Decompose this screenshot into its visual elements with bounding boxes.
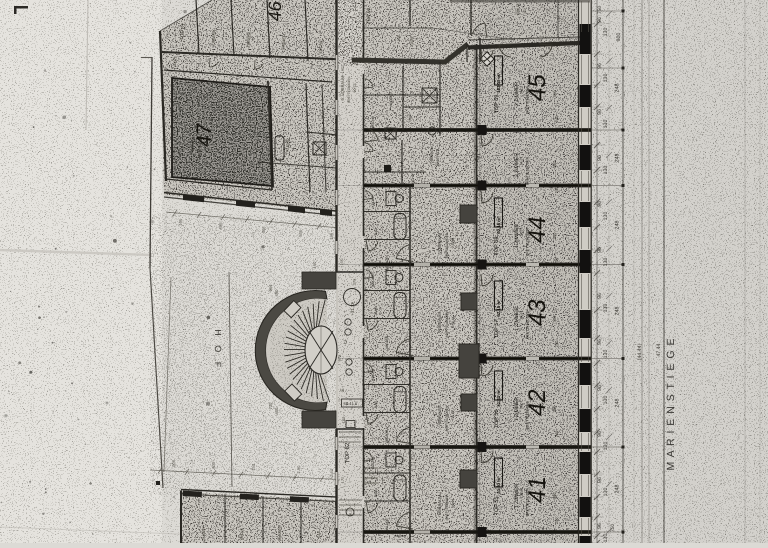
- svg-text:172: 172: [340, 476, 345, 483]
- svg-text:450: 450: [552, 315, 557, 322]
- svg-text:BAD: BAD: [408, 113, 412, 121]
- svg-text:34,07: 34,07: [520, 86, 524, 95]
- svg-text:KAB.: KAB.: [317, 530, 321, 538]
- svg-text:TOP 62: TOP 62: [344, 442, 351, 463]
- svg-text:ZIMMER: ZIMMER: [278, 527, 282, 542]
- svg-text:240: 240: [554, 517, 559, 524]
- svg-text:10,73: 10,73: [353, 84, 357, 93]
- svg-text:+2,64: +2,64: [329, 468, 334, 479]
- svg-text:BRETTELBODEN: BRETTELBODEN: [445, 311, 449, 337]
- svg-text:51,43 m²: 51,43 m²: [496, 389, 501, 407]
- svg-text:130: 130: [603, 442, 609, 451]
- svg-text:130: 130: [603, 212, 609, 221]
- svg-text:KÜCHE: KÜCHE: [240, 527, 244, 540]
- svg-text:130: 130: [603, 350, 609, 359]
- svg-text:96: 96: [597, 201, 603, 207]
- svg-text:47: 47: [193, 122, 216, 149]
- svg-text:130: 130: [603, 534, 609, 543]
- svg-text:BRETTELBODEN: BRETTELBODEN: [445, 405, 449, 431]
- svg-text:BRETTELBODEN: BRETTELBODEN: [526, 156, 530, 185]
- svg-text:VORRAUM: VORRAUM: [437, 495, 442, 515]
- svg-text:248: 248: [615, 485, 621, 494]
- svg-text:96: 96: [597, 477, 603, 483]
- svg-text:VORRAUM: VORRAUM: [430, 146, 434, 164]
- svg-text:96: 96: [597, 339, 603, 345]
- svg-text:KÜCHE: KÜCHE: [411, 173, 415, 186]
- svg-text:TOP 55: TOP 55: [494, 497, 500, 516]
- svg-text:4. VORRAUM: 4. VORRAUM: [340, 76, 345, 101]
- svg-text:555: 555: [397, 35, 401, 41]
- svg-text:240: 240: [554, 430, 559, 437]
- svg-text:190: 190: [329, 232, 335, 240]
- svg-text:450: 450: [552, 232, 557, 239]
- svg-text:130: 130: [603, 304, 609, 313]
- svg-text:153,05 m²: 153,05 m²: [496, 73, 501, 93]
- svg-text:190: 190: [340, 66, 345, 73]
- svg-text:920: 920: [616, 33, 622, 42]
- svg-text:248: 248: [615, 154, 621, 163]
- svg-text:BRETTELBODEN: BRETTELBODEN: [445, 232, 449, 258]
- svg-text:+31,73: +31,73: [350, 302, 355, 316]
- svg-text:468: 468: [261, 226, 267, 234]
- svg-text:248: 248: [615, 221, 621, 230]
- svg-text:975: 975: [337, 354, 342, 362]
- svg-text:96: 96: [597, 63, 603, 69]
- svg-text:964: 964: [268, 284, 273, 292]
- svg-text:TOP 58: TOP 58: [494, 237, 500, 256]
- svg-text:34,07: 34,07: [520, 311, 524, 320]
- svg-text:U: U: [343, 340, 349, 344]
- svg-text:96: 96: [597, 155, 603, 161]
- svg-text:(400): (400): [410, 36, 414, 46]
- svg-text:M A R I E N S T I E G E: M A R I E N S T I E G E: [665, 338, 677, 471]
- svg-text:248: 248: [615, 307, 621, 316]
- svg-text:51,43 m²: 51,43 m²: [496, 476, 501, 494]
- svg-text:KÜCHE: KÜCHE: [371, 456, 375, 469]
- svg-text:2,60: 2,60: [296, 465, 301, 474]
- svg-text:BAD: BAD: [374, 227, 378, 235]
- svg-text:96: 96: [597, 293, 603, 299]
- svg-text:130: 130: [603, 166, 609, 175]
- svg-text:(44,44): (44,44): [637, 344, 643, 361]
- svg-text:96: 96: [597, 109, 603, 115]
- svg-text:TOP 60: TOP 60: [366, 7, 372, 24]
- svg-text:KÜCHE: KÜCHE: [371, 274, 375, 287]
- svg-text:300: 300: [523, 8, 527, 14]
- svg-text:34,07: 34,07: [520, 488, 524, 497]
- svg-text:ABLAGE: ABLAGE: [385, 335, 389, 349]
- svg-text:130: 130: [603, 258, 609, 267]
- svg-text:400: 400: [274, 407, 279, 415]
- svg-text:180: 180: [341, 416, 346, 423]
- svg-text:750: 750: [610, 524, 616, 533]
- svg-text:248: 248: [615, 84, 621, 93]
- svg-text:ABLAGE: ABLAGE: [389, 92, 393, 106]
- svg-text:96: 96: [597, 247, 603, 253]
- svg-text:20,61: 20,61: [451, 410, 455, 418]
- svg-text:TOP 59: TOP 59: [494, 95, 500, 114]
- svg-text:BRETTELBODEN: BRETTELBODEN: [347, 76, 351, 102]
- svg-text:130: 130: [603, 396, 609, 405]
- svg-text:130: 130: [603, 28, 609, 37]
- svg-text:375: 375: [352, 278, 357, 286]
- svg-text:ZIM 12: ZIM 12: [516, 3, 520, 14]
- svg-text:KÜCHE: KÜCHE: [371, 195, 375, 208]
- svg-text:VORRAUM: VORRAUM: [437, 233, 442, 253]
- svg-text:34,07: 34,07: [520, 228, 524, 237]
- svg-text:450: 450: [552, 90, 557, 97]
- svg-text:490: 490: [218, 222, 224, 230]
- svg-text:150: 150: [251, 463, 256, 471]
- svg-text:92,18 m²: 92,18 m²: [496, 216, 501, 234]
- svg-text:240: 240: [554, 115, 559, 122]
- svg-text:720: 720: [268, 402, 273, 410]
- svg-text:VORRAUM: VORRAUM: [437, 312, 442, 332]
- svg-text:20,61: 20,61: [451, 316, 455, 324]
- svg-text:750: 750: [597, 6, 603, 15]
- svg-text:900: 900: [171, 459, 176, 467]
- svg-text:ABLAGE: ABLAGE: [385, 517, 389, 531]
- svg-text:58-41,6: 58-41,6: [344, 401, 358, 406]
- svg-text:47,44: 47,44: [656, 343, 662, 356]
- svg-text:44: 44: [524, 214, 551, 244]
- svg-text:300: 300: [211, 461, 216, 469]
- svg-text:46: 46: [265, 0, 285, 23]
- svg-text:130: 130: [603, 74, 609, 83]
- svg-text:BAD: BAD: [374, 306, 378, 314]
- svg-text:BRETTELB.: BRETTELB.: [436, 148, 440, 167]
- svg-text:KÜCHE: KÜCHE: [371, 368, 375, 381]
- svg-text:190: 190: [312, 261, 317, 268]
- svg-text:240: 240: [554, 186, 559, 193]
- svg-text:950: 950: [298, 229, 304, 237]
- svg-text:TOP 57: TOP 57: [494, 320, 500, 339]
- svg-text:160: 160: [178, 218, 184, 226]
- svg-text:130: 130: [603, 488, 609, 497]
- svg-text:34,07: 34,07: [520, 157, 524, 166]
- svg-text:20,61: 20,61: [451, 499, 455, 507]
- svg-text:ABLAGE: ABLAGE: [385, 256, 389, 270]
- svg-text:248: 248: [615, 399, 621, 408]
- svg-text:130: 130: [603, 120, 609, 129]
- svg-text:42: 42: [524, 387, 551, 417]
- svg-text:ABLAGE: ABLAGE: [385, 429, 389, 443]
- svg-text:BAD: BAD: [374, 400, 378, 408]
- svg-text:490: 490: [274, 289, 279, 297]
- svg-text:H O F: H O F: [213, 329, 223, 371]
- svg-text:TOP 56: TOP 56: [494, 410, 500, 429]
- svg-text:450: 450: [552, 161, 557, 168]
- svg-text:450: 450: [552, 405, 557, 412]
- svg-text:240: 240: [554, 340, 559, 347]
- svg-text:240: 240: [554, 257, 559, 264]
- svg-text:92,18 m²: 92,18 m²: [496, 299, 501, 317]
- svg-text:41: 41: [524, 474, 551, 504]
- svg-text:34,07: 34,07: [520, 401, 524, 410]
- svg-text:20,61: 20,61: [451, 237, 455, 245]
- svg-text:VORRAUM: VORRAUM: [437, 406, 442, 426]
- svg-text:96: 96: [597, 523, 603, 529]
- svg-text:45: 45: [524, 72, 551, 102]
- svg-text:96: 96: [597, 17, 603, 23]
- svg-text:BAD: BAD: [374, 489, 378, 497]
- svg-text:450: 450: [552, 492, 557, 499]
- svg-text:96: 96: [597, 385, 603, 391]
- svg-text:BRETTELBODEN: BRETTELBODEN: [445, 493, 449, 519]
- svg-text:96: 96: [597, 431, 603, 437]
- svg-text:ZIMMER: ZIMMER: [202, 527, 206, 542]
- svg-text:KÜCHE: KÜCHE: [371, 115, 375, 128]
- svg-text:43: 43: [524, 297, 551, 327]
